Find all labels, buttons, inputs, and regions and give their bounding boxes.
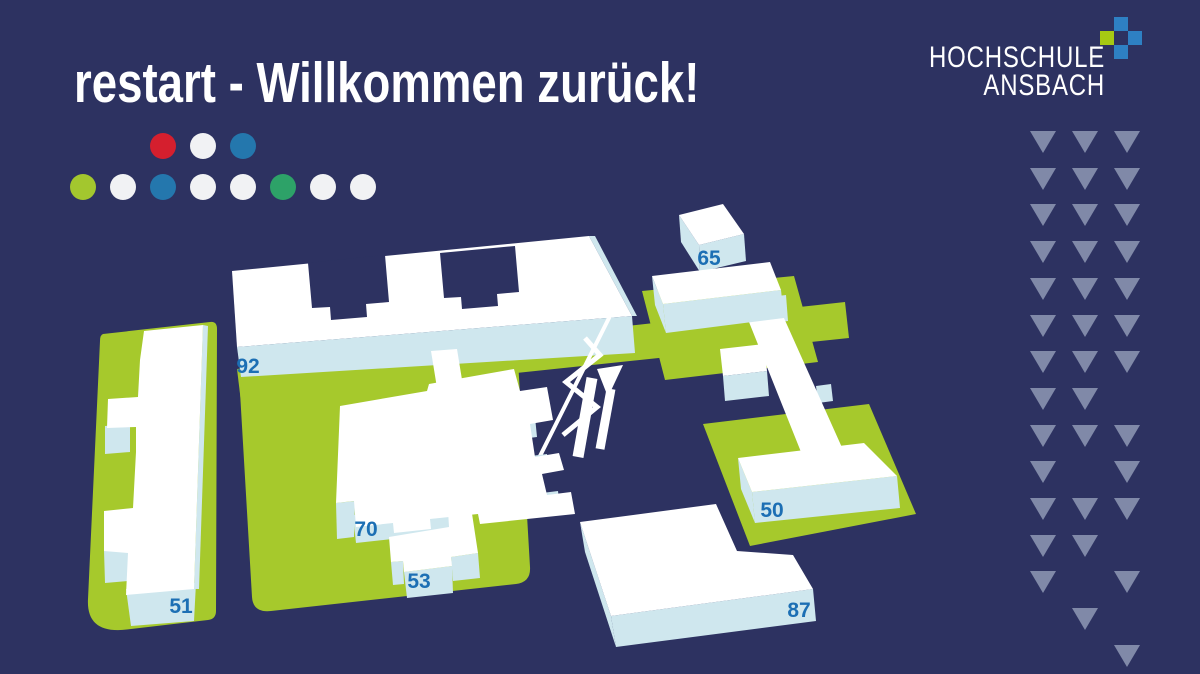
logo-square-icon — [1114, 17, 1128, 31]
decor-dot — [190, 133, 216, 159]
triangle-icon — [1072, 535, 1098, 557]
building-label-65: 65 — [697, 247, 721, 270]
triangle-icon — [1072, 425, 1098, 447]
building-label-53: 53 — [407, 570, 430, 593]
triangle-icon — [1072, 168, 1098, 190]
building-label-70: 70 — [354, 518, 377, 541]
triangle-icon — [1030, 461, 1056, 483]
building-label-92: 92 — [236, 355, 259, 378]
decor-dot — [350, 174, 376, 200]
decor-dot — [230, 174, 256, 200]
decor-dot — [70, 174, 96, 200]
triangle-icon — [1030, 204, 1056, 226]
triangle-icon — [1114, 571, 1140, 593]
building-label-50: 50 — [760, 499, 783, 522]
dots-row-2 — [70, 174, 390, 200]
triangle-icon — [1114, 315, 1140, 337]
building-50: 50 — [652, 262, 900, 523]
triangle-icon — [1072, 241, 1098, 263]
logo-line-1: HOCHSCHULE — [929, 44, 1105, 72]
triangle-icon — [1072, 388, 1098, 410]
triangle-icon — [1030, 278, 1056, 300]
triangle-icon — [1114, 645, 1140, 667]
building-65: 65 — [679, 204, 746, 272]
triangle-icon — [1114, 461, 1140, 483]
triangle-icon — [1030, 351, 1056, 373]
logo-square-icon — [1128, 31, 1142, 45]
triangle-icon — [1072, 204, 1098, 226]
triangle-icon — [1072, 608, 1098, 630]
logo-square-icon — [1114, 45, 1128, 59]
triangle-pattern — [1030, 131, 1190, 671]
triangle-icon — [1030, 131, 1056, 153]
banner-background: 51 92 65 — [0, 0, 1200, 674]
triangle-icon — [1030, 315, 1056, 337]
hochschule-ansbach-logo-icon — [1099, 16, 1143, 60]
triangle-icon — [1114, 498, 1140, 520]
triangle-icon — [1030, 535, 1056, 557]
triangle-icon — [1030, 388, 1056, 410]
triangle-icon — [1114, 168, 1140, 190]
decor-dot — [230, 133, 256, 159]
triangle-icon — [1114, 278, 1140, 300]
building-label-87: 87 — [787, 599, 810, 622]
building-label-51: 51 — [169, 595, 193, 618]
triangle-icon — [1072, 315, 1098, 337]
triangle-icon — [1072, 131, 1098, 153]
page-title: restart - Willkommen zurück! — [74, 50, 699, 116]
triangle-icon — [1114, 241, 1140, 263]
triangle-icon — [1114, 131, 1140, 153]
hochschule-ansbach-wordmark: HOCHSCHULE ANSBACH — [929, 44, 1105, 100]
triangle-icon — [1072, 278, 1098, 300]
triangle-icon — [1114, 204, 1140, 226]
decor-dot — [190, 174, 216, 200]
triangle-icon — [1030, 425, 1056, 447]
triangle-icon — [1072, 351, 1098, 373]
triangle-icon — [1030, 168, 1056, 190]
decor-dot — [150, 174, 176, 200]
triangle-icon — [1072, 498, 1098, 520]
decor-dot — [110, 174, 136, 200]
decor-dot — [270, 174, 296, 200]
logo-line-2: ANSBACH — [929, 72, 1105, 100]
triangle-icon — [1030, 498, 1056, 520]
triangle-icon — [1114, 425, 1140, 447]
triangle-icon — [1030, 241, 1056, 263]
dots-row-1 — [150, 133, 270, 159]
decor-dot — [310, 174, 336, 200]
triangle-icon — [1030, 571, 1056, 593]
triangle-icon — [1114, 351, 1140, 373]
decor-dot — [150, 133, 176, 159]
